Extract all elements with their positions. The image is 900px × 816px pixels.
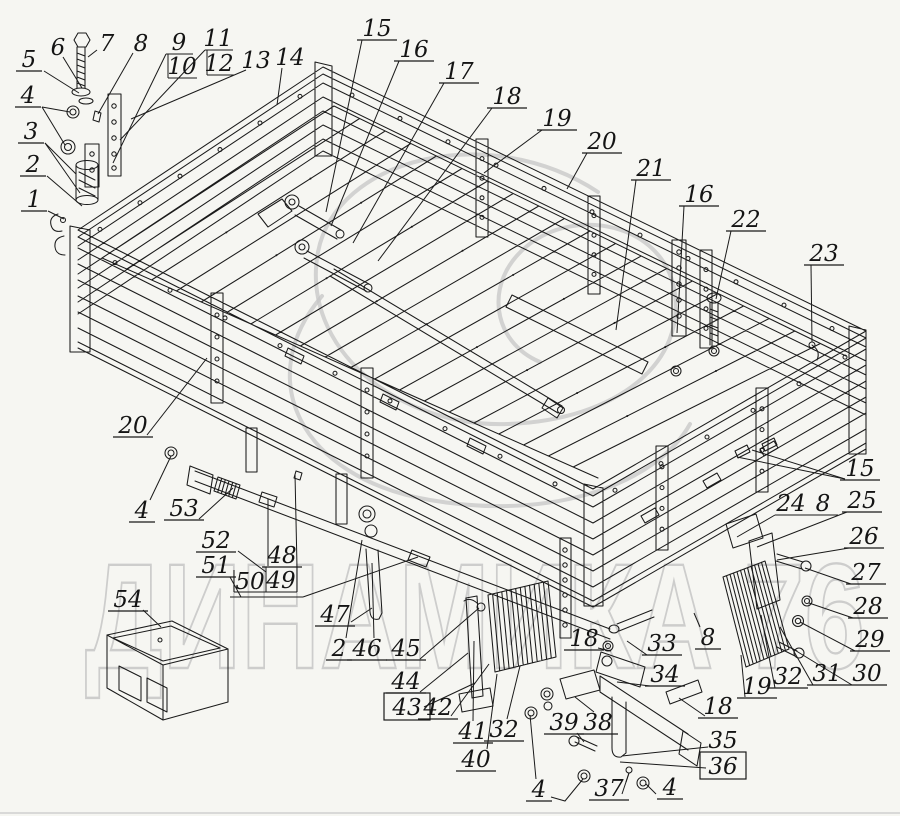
callout-45: 45 — [390, 636, 420, 662]
leader-line — [737, 457, 845, 479]
leader-line — [42, 107, 65, 145]
leader-line — [42, 107, 70, 112]
callout-40: 40 — [460, 747, 490, 773]
callout-15: 15 — [362, 16, 391, 42]
callout-39: 39 — [549, 710, 578, 736]
callout-8: 8 — [134, 31, 149, 57]
callout-23: 23 — [808, 241, 838, 267]
leader-line — [147, 358, 207, 435]
callout-14: 14 — [275, 45, 304, 71]
technical-drawing: ДИНАМИКА 76 6758910111213144321151617181… — [0, 0, 900, 816]
callout-47: 47 — [319, 602, 350, 628]
callout-18: 18 — [569, 626, 598, 652]
callout-11: 11 — [203, 26, 232, 52]
diagram-page: ДИНАМИКА 76 6758910111213144321151617181… — [0, 0, 900, 816]
leader-line — [551, 779, 583, 801]
callout-19: 19 — [742, 674, 771, 700]
callout-27: 27 — [850, 560, 881, 586]
callout-2: 2 — [25, 152, 41, 178]
watermark-layer: ДИНАМИКА 76 — [85, 154, 865, 700]
leader-line — [646, 784, 656, 794]
callout-28: 28 — [852, 594, 882, 620]
callout-35: 35 — [708, 728, 737, 754]
callout-3: 3 — [24, 119, 39, 145]
callout-32: 32 — [773, 664, 802, 690]
callout-49: 49 — [265, 568, 295, 594]
callout-16: 16 — [399, 37, 428, 63]
leader-line — [88, 50, 97, 57]
callout-1: 1 — [27, 187, 42, 213]
callout-6: 6 — [51, 35, 66, 61]
callout-24: 24 — [775, 491, 805, 517]
callout-50: 50 — [235, 569, 264, 595]
callout-54: 54 — [113, 587, 142, 613]
callout-46: 46 — [351, 636, 381, 662]
callout-10: 10 — [167, 54, 196, 80]
callout-17: 17 — [444, 59, 474, 85]
callout-8: 8 — [701, 625, 716, 651]
callout-5: 5 — [22, 47, 37, 73]
hatched-flap — [214, 477, 240, 499]
leader-line — [47, 176, 82, 206]
callout-43: 43 — [391, 695, 421, 721]
callout-12: 12 — [204, 51, 233, 77]
leader-line — [63, 57, 82, 88]
leader-line — [120, 50, 205, 140]
callout-4: 4 — [134, 498, 150, 524]
callout-9: 9 — [172, 30, 187, 56]
callout-33: 33 — [647, 631, 676, 657]
callout-18: 18 — [492, 84, 521, 110]
callout-26: 26 — [848, 524, 878, 550]
callout-15: 15 — [845, 456, 874, 482]
callout-30: 30 — [852, 661, 881, 687]
leader-line — [811, 265, 812, 342]
callout-8: 8 — [816, 491, 831, 517]
callout-25: 25 — [846, 488, 876, 514]
callout-21: 21 — [635, 156, 665, 182]
callout-36: 36 — [708, 754, 737, 780]
leader-line — [199, 488, 233, 519]
leader-line — [622, 747, 708, 756]
callout-52: 52 — [201, 528, 230, 554]
callout-20: 20 — [117, 413, 147, 439]
callout-2: 2 — [331, 636, 347, 662]
platform-drawing-layer — [70, 62, 866, 607]
callout-29: 29 — [854, 627, 884, 653]
callout-37: 37 — [594, 776, 624, 802]
callout-32: 32 — [489, 717, 518, 743]
leader-line — [150, 456, 171, 500]
callout-34: 34 — [650, 662, 679, 688]
callout-42: 42 — [422, 695, 452, 721]
callout-4: 4 — [20, 83, 36, 109]
callout-44: 44 — [390, 669, 420, 695]
callout-4: 4 — [662, 775, 678, 801]
callout-19: 19 — [542, 106, 571, 132]
leader-line — [48, 211, 64, 219]
callout-31: 31 — [812, 661, 841, 687]
callout-4: 4 — [531, 777, 547, 803]
leader-line — [716, 231, 731, 299]
callout-22: 22 — [730, 207, 760, 233]
callout-18: 18 — [703, 694, 732, 720]
callout-20: 20 — [586, 129, 616, 155]
callout-51: 51 — [201, 553, 230, 579]
callout-13: 13 — [241, 48, 270, 74]
leader-line — [752, 450, 845, 479]
callout-53: 53 — [169, 496, 198, 522]
callout-7: 7 — [100, 31, 115, 57]
leader-line — [679, 698, 705, 716]
leader-line — [277, 68, 282, 105]
leader-line — [530, 715, 536, 779]
callout-48: 48 — [266, 543, 296, 569]
callout-41: 41 — [457, 719, 487, 745]
callout-16: 16 — [684, 182, 713, 208]
callout-38: 38 — [583, 710, 612, 736]
